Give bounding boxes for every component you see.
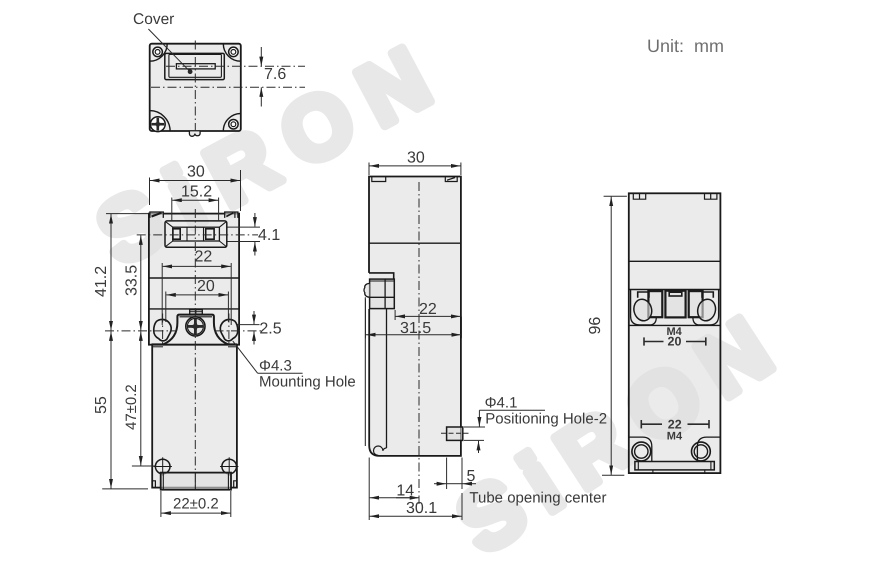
- svg-text:Unit: mm: Unit: mm: [647, 36, 724, 56]
- svg-text:30: 30: [187, 164, 205, 181]
- svg-text:31.5: 31.5: [400, 320, 431, 337]
- svg-text:15.2: 15.2: [181, 183, 212, 200]
- svg-text:20: 20: [668, 335, 682, 349]
- svg-text:14: 14: [396, 483, 414, 500]
- svg-text:47±0.2: 47±0.2: [123, 384, 140, 430]
- svg-text:7.6: 7.6: [264, 66, 286, 83]
- svg-text:Tube opening center: Tube opening center: [469, 490, 606, 507]
- svg-text:22: 22: [668, 418, 682, 432]
- svg-text:5: 5: [467, 468, 476, 485]
- svg-text:30: 30: [407, 150, 425, 167]
- svg-text:96: 96: [587, 317, 604, 335]
- svg-text:Positioning Hole-2: Positioning Hole-2: [485, 411, 607, 428]
- svg-text:22: 22: [419, 301, 437, 318]
- svg-text:33.5: 33.5: [124, 265, 141, 296]
- svg-text:41.2: 41.2: [93, 266, 110, 297]
- svg-text:20: 20: [197, 278, 215, 295]
- svg-text:Φ4.1: Φ4.1: [485, 395, 518, 412]
- svg-text:Mounting Hole: Mounting Hole: [259, 374, 356, 391]
- svg-text:Cover: Cover: [133, 11, 174, 28]
- svg-text:30.1: 30.1: [406, 500, 437, 517]
- svg-text:22: 22: [195, 248, 213, 265]
- svg-text:55: 55: [93, 396, 110, 414]
- svg-text:22±0.2: 22±0.2: [173, 495, 219, 512]
- svg-text:2.5: 2.5: [259, 321, 281, 338]
- svg-text:4.1: 4.1: [258, 227, 280, 244]
- svg-text:Φ4.3: Φ4.3: [259, 358, 292, 375]
- svg-text:M4: M4: [667, 431, 683, 443]
